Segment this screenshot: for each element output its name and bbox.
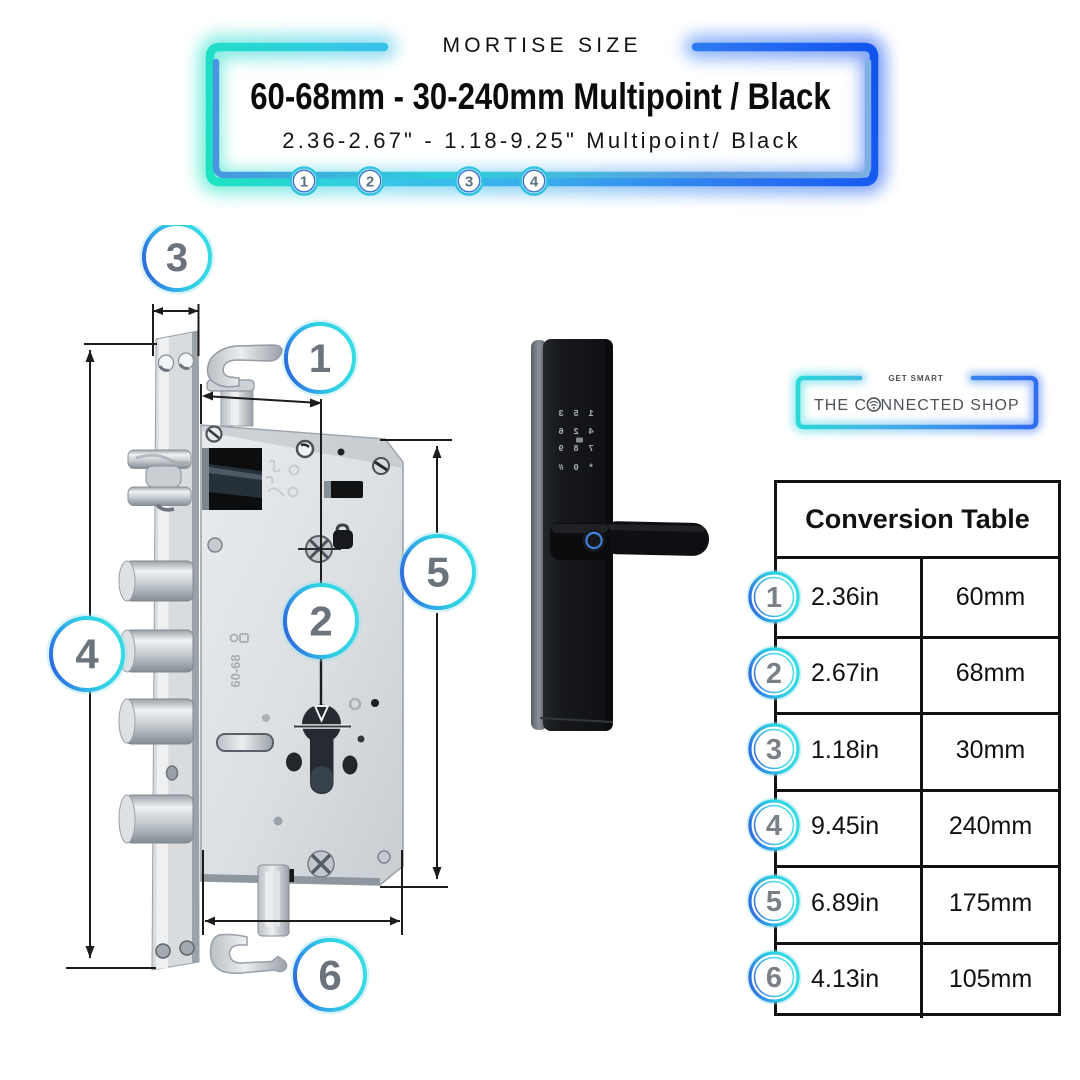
svg-text:1: 1	[766, 582, 782, 614]
svg-text:2: 2	[573, 427, 578, 437]
svg-text:9: 9	[558, 444, 563, 454]
svg-text:3: 3	[766, 734, 782, 766]
svg-text:THE C: THE C	[814, 397, 867, 414]
svg-text:6: 6	[766, 962, 782, 994]
svg-text:60-68: 60-68	[228, 654, 243, 687]
svg-text:3: 3	[166, 236, 188, 280]
svg-text:5: 5	[426, 549, 449, 596]
svg-text:NNECTED SHOP: NNECTED SHOP	[881, 397, 1020, 414]
svg-text:3: 3	[465, 174, 473, 191]
svg-text:1: 1	[588, 409, 594, 419]
svg-text:1: 1	[300, 174, 308, 191]
svg-text:2: 2	[366, 174, 374, 191]
svg-text:6: 6	[318, 952, 341, 999]
svg-text:0: 0	[573, 463, 578, 473]
svg-text:GET SMART: GET SMART	[888, 374, 943, 383]
svg-text:5: 5	[573, 409, 578, 419]
svg-text:4: 4	[75, 631, 99, 678]
svg-text:2: 2	[766, 658, 782, 690]
svg-text:1: 1	[309, 337, 331, 381]
svg-text:2: 2	[309, 598, 332, 645]
svg-text:4: 4	[766, 810, 782, 842]
svg-text:7: 7	[588, 444, 593, 454]
svg-text:6: 6	[558, 427, 563, 437]
svg-text:*: *	[588, 463, 593, 473]
svg-text:3: 3	[558, 409, 563, 419]
svg-text:5: 5	[766, 886, 782, 918]
svg-text:4: 4	[588, 427, 594, 437]
svg-text:#: #	[558, 463, 564, 473]
svg-text:4: 4	[530, 174, 539, 191]
svg-text:8: 8	[573, 444, 578, 454]
